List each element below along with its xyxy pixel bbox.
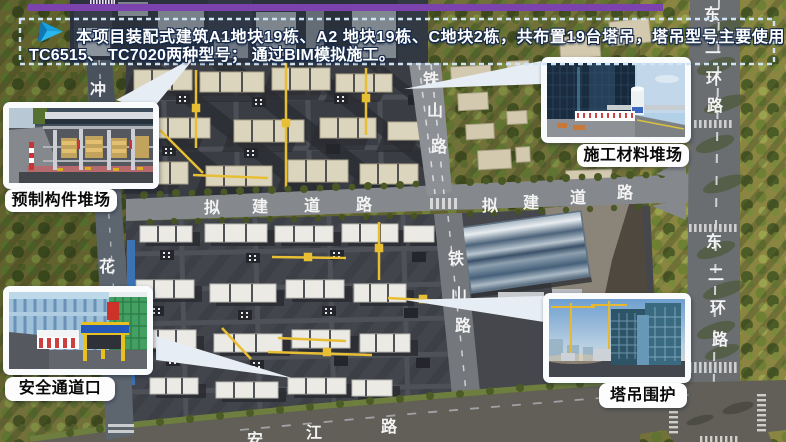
svg-text:建: 建 xyxy=(252,198,268,216)
svg-text:铁: 铁 xyxy=(448,249,464,268)
svg-text:路: 路 xyxy=(431,137,448,156)
svg-text:拟: 拟 xyxy=(204,198,220,217)
svg-text:路: 路 xyxy=(356,195,373,214)
svg-text:花: 花 xyxy=(99,257,115,276)
svg-text:山: 山 xyxy=(427,102,443,120)
svg-text:东: 东 xyxy=(706,232,722,251)
svg-text:路: 路 xyxy=(707,96,724,115)
svg-text:安: 安 xyxy=(247,430,263,442)
svg-text:路: 路 xyxy=(455,316,472,335)
svg-text:环: 环 xyxy=(710,299,726,317)
svg-text:二: 二 xyxy=(708,267,724,284)
svg-text:路: 路 xyxy=(381,417,398,436)
svg-text:拟: 拟 xyxy=(482,196,498,215)
svg-text:路: 路 xyxy=(712,330,729,349)
svg-text:环: 环 xyxy=(706,70,722,88)
svg-text:建: 建 xyxy=(523,194,539,212)
svg-text:冲: 冲 xyxy=(90,80,106,99)
svg-text:道: 道 xyxy=(570,188,586,207)
svg-text:路: 路 xyxy=(617,183,634,202)
svg-text:江: 江 xyxy=(306,424,322,442)
svg-text:道: 道 xyxy=(304,196,320,215)
